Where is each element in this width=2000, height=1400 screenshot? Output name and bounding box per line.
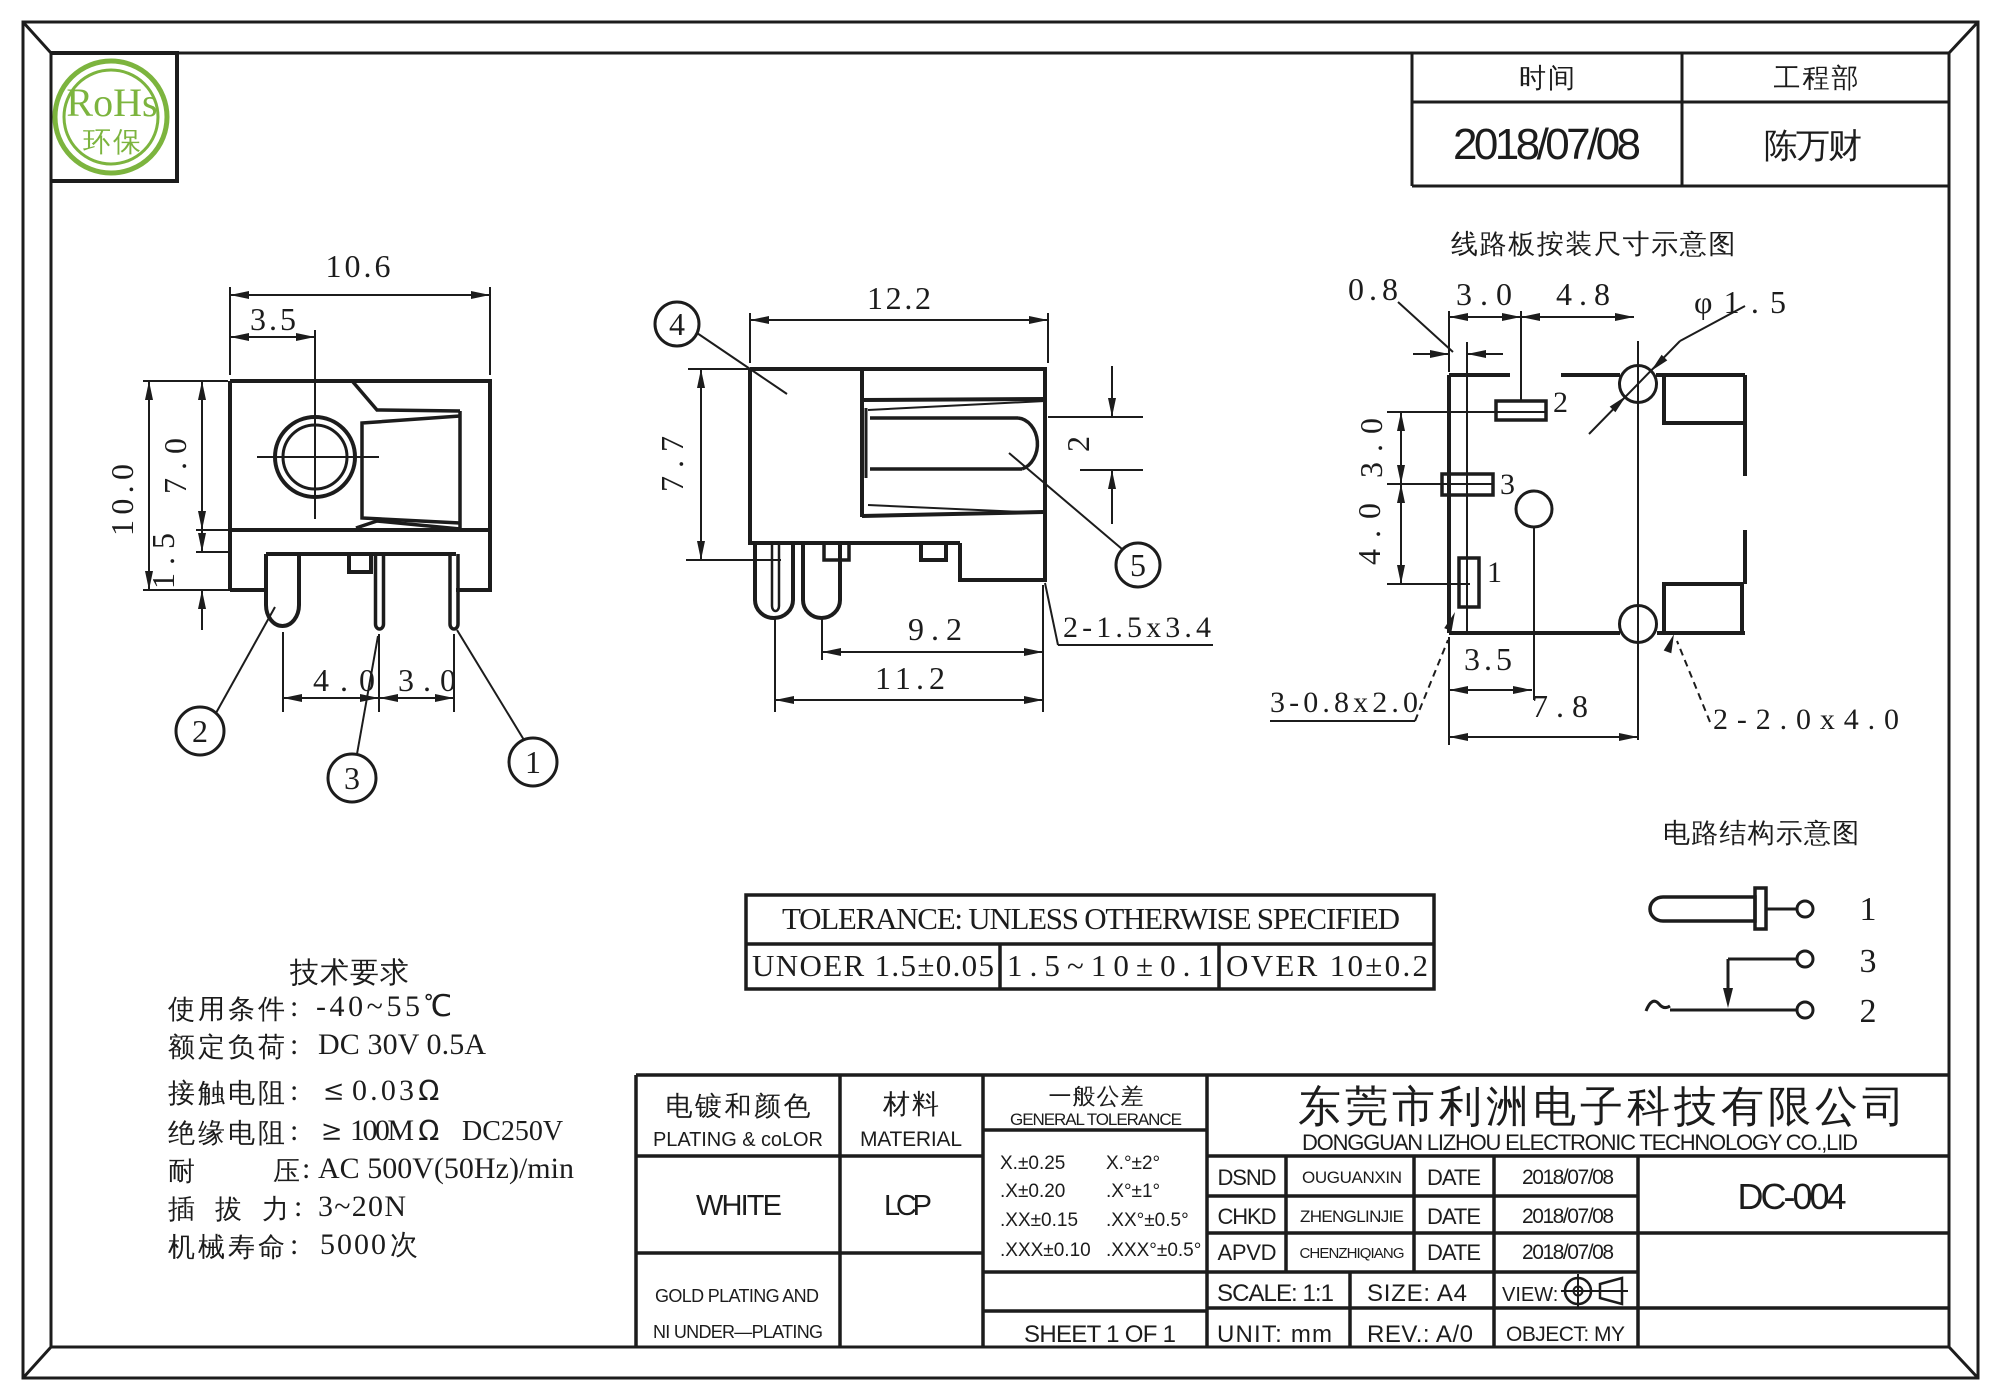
svg-text:4.8: 4.8 [1556,276,1610,312]
svg-text:12.2: 12.2 [867,280,931,316]
svg-text:0.8: 0.8 [1348,271,1398,307]
svg-text::: : [290,1028,298,1061]
svg-text:REV.: A/0: REV.: A/0 [1367,1321,1473,1348]
svg-text:CHENZHIQIANG: CHENZHIQIANG [1300,1245,1405,1262]
svg-text:5: 5 [1130,547,1146,583]
svg-text:DC250V: DC250V [462,1116,563,1147]
svg-text:APVD: APVD [1218,1240,1277,1265]
svg-text:7.7: 7.7 [654,436,690,492]
svg-text:DC 30V 0.5A: DC 30V 0.5A [318,1028,486,1061]
svg-text:2: 2 [192,713,208,749]
svg-text:0.03: 0.03 [352,1074,414,1107]
svg-text:SIZE: A4: SIZE: A4 [1367,1280,1467,1307]
svg-text::: : [290,1074,298,1107]
svg-text:DATE: DATE [1427,1240,1481,1265]
svg-text:RoHs: RoHs [66,80,157,125]
svg-text:DATE: DATE [1427,1204,1481,1229]
svg-text:SHEET 1 OF 1: SHEET 1 OF 1 [1024,1321,1176,1348]
svg-text:1: 1 [525,744,541,780]
svg-text:2: 2 [1553,386,1568,419]
svg-text:10.0: 10.0 [104,464,140,536]
svg-text::: : [290,990,298,1023]
svg-text:4.0: 4.0 [1351,503,1387,565]
svg-text:WHITE: WHITE [696,1190,782,1222]
svg-text:3.5: 3.5 [250,301,296,337]
svg-text:DC-004: DC-004 [1738,1176,1847,1217]
svg-text::: : [290,1228,298,1261]
svg-text:4: 4 [669,306,685,342]
svg-text:X.°±2°: X.°±2° [1106,1153,1160,1174]
svg-text:100M: 100M [350,1114,414,1147]
svg-text:DSND: DSND [1218,1165,1277,1190]
svg-text:DATE: DATE [1427,1165,1481,1190]
svg-text:X.±0.25: X.±0.25 [1000,1153,1065,1174]
svg-text:1: 1 [1487,556,1502,589]
svg-text:.XXX±0.10: .XXX±0.10 [1000,1240,1091,1261]
svg-text:3.5: 3.5 [1464,641,1512,677]
svg-text:LCP: LCP [884,1190,932,1222]
svg-text:2018/07/08: 2018/07/08 [1522,1166,1614,1189]
svg-text:CHKD: CHKD [1218,1204,1277,1229]
svg-text:.X±0.20: .X±0.20 [1000,1181,1065,1202]
svg-text:.XX°±0.5°: .XX°±0.5° [1106,1210,1189,1231]
svg-text::: : [294,1190,302,1223]
svg-text:11.2: 11.2 [875,660,945,696]
svg-text:3: 3 [1860,943,1877,980]
svg-text:SCALE: 1:1: SCALE: 1:1 [1217,1280,1334,1307]
svg-text:GOLD PLATING AND: GOLD PLATING AND [655,1286,819,1306]
svg-text:-40~55: -40~55 [316,990,420,1023]
svg-text:7.8: 7.8 [1532,688,1588,724]
svg-text:UNOER 1.5±0.05: UNOER 1.5±0.05 [752,948,994,983]
svg-text:OVER 10±0.2: OVER 10±0.2 [1226,948,1428,983]
svg-text:3-0.8x2.0: 3-0.8x2.0 [1270,686,1418,719]
svg-text:2-2.0x4.0: 2-2.0x4.0 [1713,703,1899,736]
svg-text:2: 2 [1060,436,1096,452]
svg-text:PLATING & coLOR: PLATING & coLOR [653,1129,823,1151]
svg-text:1.5: 1.5 [145,533,181,589]
svg-text:.XX±0.15: .XX±0.15 [1000,1210,1078,1231]
svg-text:AC 500V(50Hz)/min: AC 500V(50Hz)/min [318,1152,574,1185]
svg-text:MATERIAL: MATERIAL [860,1128,962,1151]
svg-text::: : [302,1152,310,1185]
svg-text:1: 1 [1860,891,1877,928]
svg-text:2018/07/08: 2018/07/08 [1522,1205,1614,1228]
svg-text:4.0: 4.0 [313,662,375,698]
svg-text:2-1.5x3.4: 2-1.5x3.4 [1063,611,1211,644]
svg-text:VIEW:: VIEW: [1502,1284,1558,1306]
svg-text:TOLERANCE: UNLESS OTHERWISE S: TOLERANCE: UNLESS OTHERWISE SPECIFIED [782,901,1400,936]
svg-text:2: 2 [1860,993,1877,1030]
svg-text:3: 3 [1500,468,1515,501]
svg-text:3.0: 3.0 [398,662,456,698]
svg-text:3~20N: 3~20N [318,1190,406,1223]
svg-text:OBJECT: MY: OBJECT: MY [1506,1323,1625,1346]
svg-text:10.6: 10.6 [326,248,391,284]
svg-text:.X°±1°: .X°±1° [1106,1181,1160,1202]
svg-text:2018/07/08: 2018/07/08 [1453,120,1641,169]
svg-text:2018/07/08: 2018/07/08 [1522,1241,1614,1264]
svg-text:OUGUANXIN: OUGUANXIN [1302,1168,1402,1187]
svg-text:UNIT: mm: UNIT: mm [1217,1321,1332,1348]
svg-text:GENERAL TOLERANCE: GENERAL TOLERANCE [1010,1110,1182,1129]
svg-text:3.0: 3.0 [1456,276,1512,312]
svg-text:.XXX°±0.5°: .XXX°±0.5° [1106,1240,1201,1261]
svg-text:7.0: 7.0 [157,438,193,494]
svg-text:NI UNDER—PLATING: NI UNDER—PLATING [653,1322,823,1342]
svg-text:DONGGUAN LIZHOU ELECTRONIC TEC: DONGGUAN LIZHOU ELECTRONIC TECHNOLOGY CO… [1302,1130,1858,1155]
svg-text:3: 3 [344,760,360,796]
svg-text:9.2: 9.2 [908,611,962,647]
svg-text:3.0: 3.0 [1353,418,1389,478]
svg-text::: : [290,1114,298,1147]
svg-text:ZHENGLINJIE: ZHENGLINJIE [1300,1207,1404,1226]
